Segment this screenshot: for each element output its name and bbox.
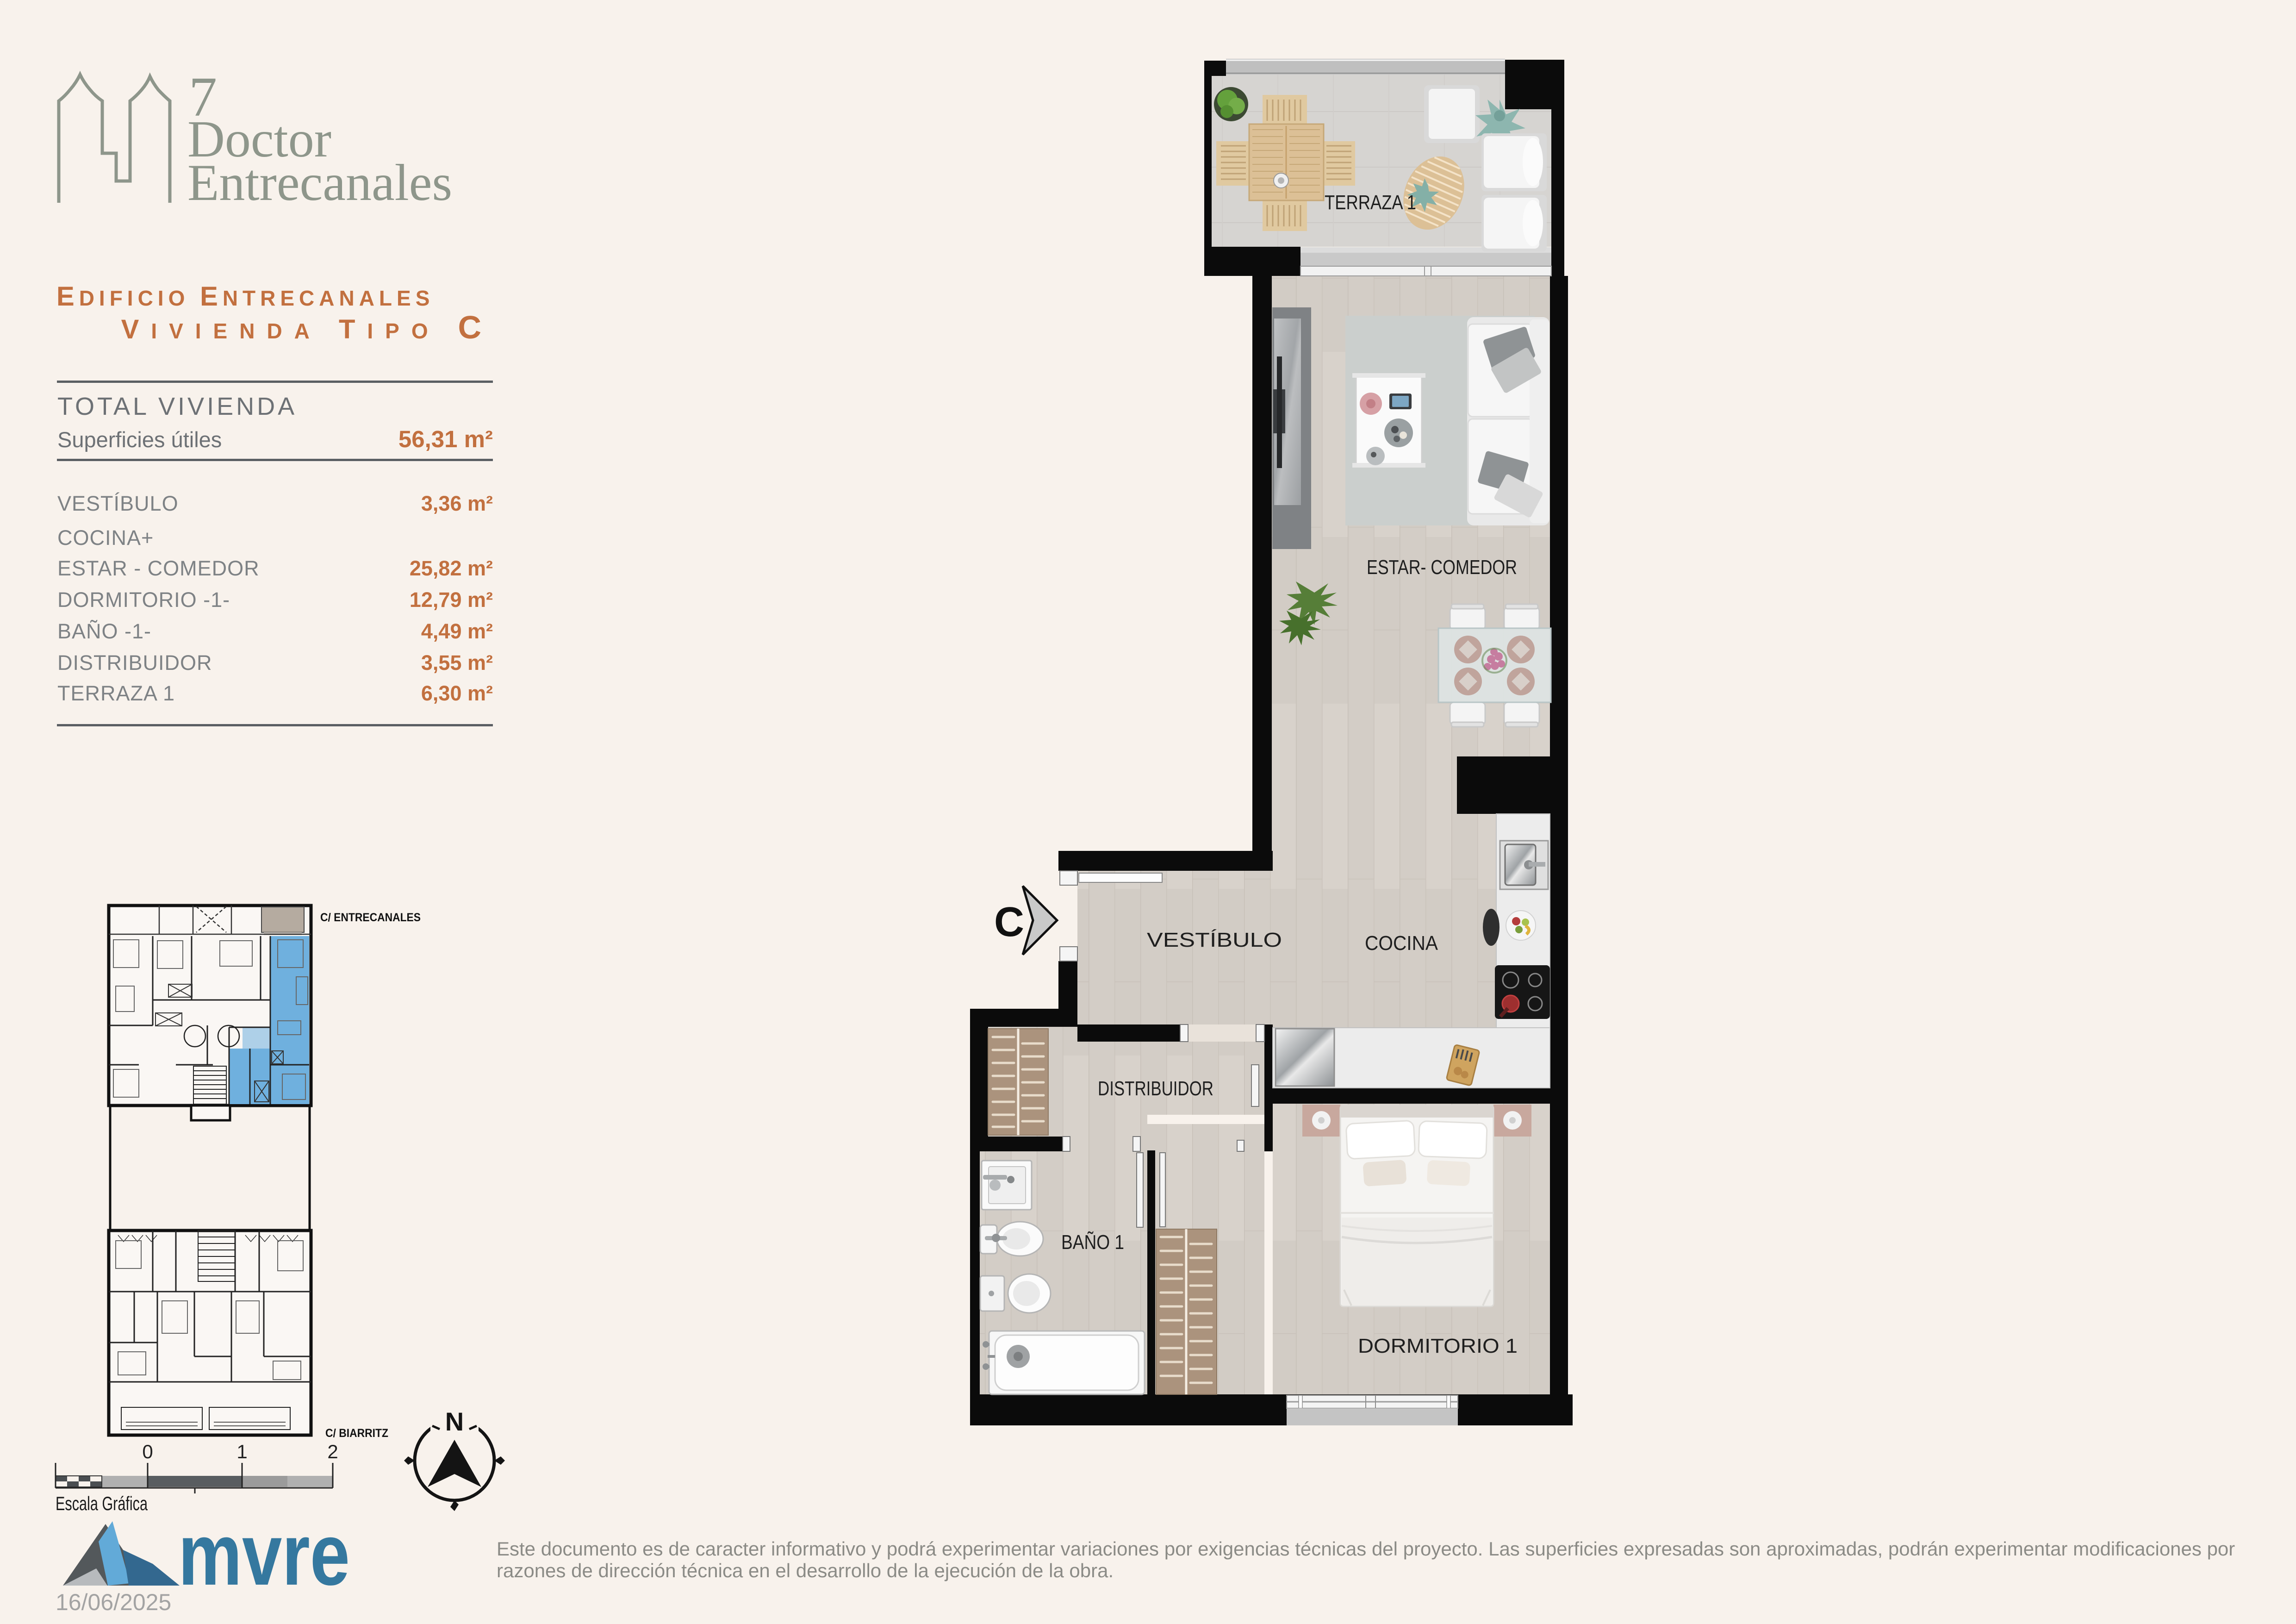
svg-text:N: N	[445, 1407, 464, 1436]
svg-text:1: 1	[236, 1441, 247, 1462]
svg-text:TERRAZA 1: TERRAZA 1	[57, 681, 175, 705]
svg-text:2: 2	[327, 1441, 338, 1462]
svg-text:25,82 m²: 25,82 m²	[410, 556, 493, 580]
svg-text:razones de dirección técnica e: razones de dirección técnica en el desar…	[497, 1560, 1114, 1581]
svg-text:ESTAR - COMEDOR: ESTAR - COMEDOR	[57, 556, 260, 580]
svg-text:C/ BIARRITZ: C/ BIARRITZ	[325, 1427, 388, 1440]
svg-text:ESTAR- COMEDOR: ESTAR- COMEDOR	[1367, 556, 1517, 579]
svg-text:3,36 m²: 3,36 m²	[421, 492, 493, 515]
svg-text:0: 0	[142, 1441, 153, 1462]
svg-text:Entrecanales: Entrecanales	[187, 154, 452, 212]
svg-text:DISTRIBUIDOR: DISTRIBUIDOR	[57, 651, 212, 675]
svg-text:VESTÍBULO: VESTÍBULO	[1147, 929, 1282, 951]
svg-text:DISTRIBUIDOR: DISTRIBUIDOR	[1098, 1077, 1213, 1100]
svg-text:TOTAL VIVIENDA: TOTAL VIVIENDA	[57, 393, 297, 420]
svg-text:VIVIENDA TIPO C: VIVIENDA TIPO C	[121, 309, 493, 345]
svg-text:6,30 m²: 6,30 m²	[421, 681, 493, 705]
svg-text:BAÑO -1-: BAÑO -1-	[57, 619, 151, 643]
svg-text:mvre: mvre	[178, 1505, 350, 1604]
svg-text:DORMITORIO 1: DORMITORIO 1	[1358, 1335, 1518, 1357]
svg-text:BAÑO 1: BAÑO 1	[1061, 1230, 1124, 1254]
svg-text:56,31 m²: 56,31 m²	[398, 426, 493, 452]
svg-text:C: C	[994, 899, 1024, 945]
svg-text:DORMITORIO -1-: DORMITORIO -1-	[57, 588, 230, 612]
svg-text:4,49 m²: 4,49 m²	[421, 619, 493, 643]
svg-text:C/ ENTRECANALES: C/ ENTRECANALES	[320, 911, 421, 924]
svg-text:EDIFICIO ENTRECANALES: EDIFICIO ENTRECANALES	[56, 281, 434, 312]
svg-text:COCINA: COCINA	[1365, 932, 1438, 955]
svg-text:COCINA+: COCINA+	[57, 526, 154, 550]
svg-text:VESTÍBULO: VESTÍBULO	[57, 492, 179, 515]
svg-text:Escala Gráfica: Escala Gráfica	[56, 1493, 148, 1514]
svg-text:12,79 m²: 12,79 m²	[410, 588, 493, 612]
svg-text:Este documento es de caracter: Este documento es de caracter informativ…	[497, 1538, 2235, 1560]
svg-text:3,55 m²: 3,55 m²	[421, 651, 493, 675]
svg-text:TERRAZA 1: TERRAZA 1	[1325, 191, 1416, 214]
svg-text:16/06/2025: 16/06/2025	[56, 1589, 171, 1615]
svg-text:Superficies útiles: Superficies útiles	[57, 427, 222, 452]
